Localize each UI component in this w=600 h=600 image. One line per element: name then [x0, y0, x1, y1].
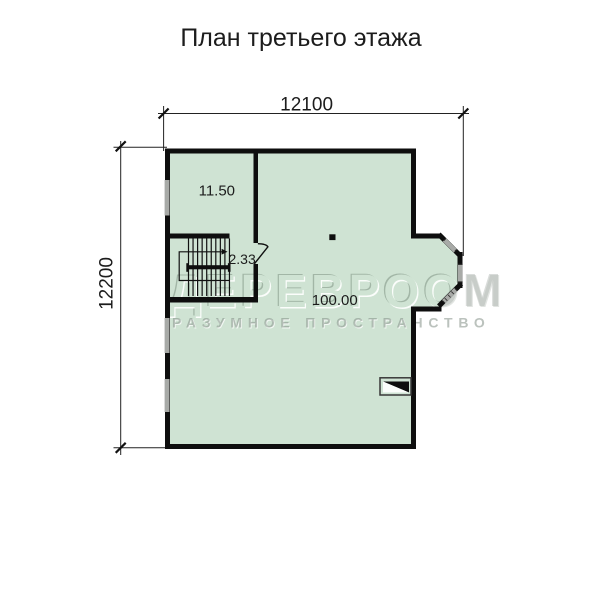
svg-text:100.00: 100.00 [312, 292, 358, 309]
svg-text:План третьего этажа: План третьего этажа [180, 24, 421, 52]
svg-text:РАЗУМНОЕ ПРОСТРАНСТВО: РАЗУМНОЕ ПРОСТРАНСТВО [172, 315, 491, 331]
svg-text:11.50: 11.50 [199, 182, 235, 199]
svg-text:12100: 12100 [280, 94, 333, 115]
svg-text:2.33: 2.33 [229, 251, 256, 267]
svg-text:12200: 12200 [97, 257, 118, 310]
